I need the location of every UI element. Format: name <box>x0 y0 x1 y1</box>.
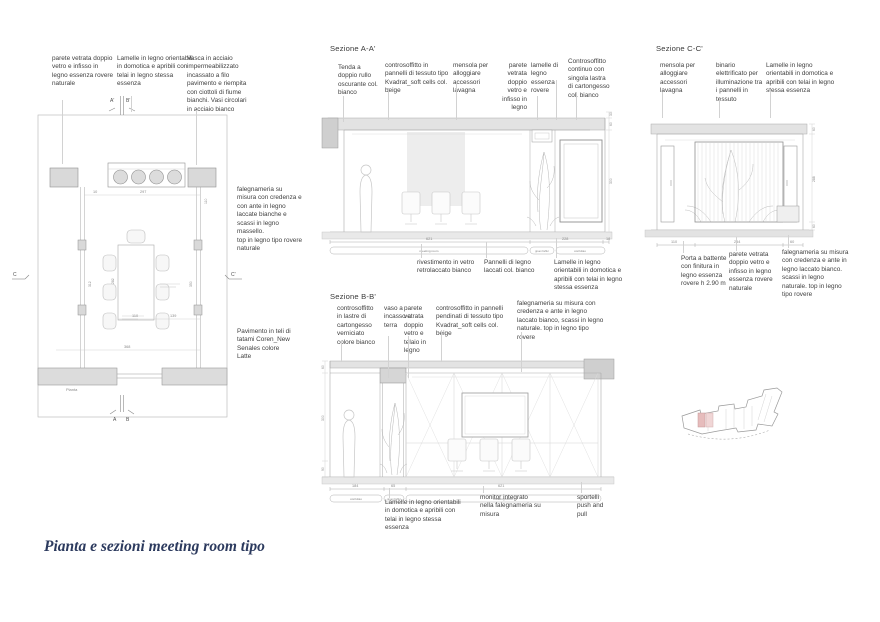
leader-line <box>770 90 771 118</box>
section-a-zones <box>330 247 605 254</box>
dim: 110 <box>671 240 677 244</box>
dim: 60 <box>609 122 613 126</box>
leader-line <box>421 244 422 258</box>
drawing-sheet: parete vetrata doppio vetro e infisso in… <box>0 0 880 622</box>
note-c-parete: parete vetrata doppio vetro e infisso in… <box>729 251 779 293</box>
leader-line <box>343 96 344 122</box>
dim: 254 <box>734 240 740 244</box>
leader-line <box>441 330 442 362</box>
dim: 60 <box>790 240 794 244</box>
plant-sketch <box>527 152 559 230</box>
note-a-parete: parete vetrata doppio vetro e infisso in… <box>497 62 527 113</box>
section-b-chairs <box>448 439 530 471</box>
plan-dim: 350 <box>189 281 193 287</box>
plan-dim: 297 <box>140 190 146 194</box>
section-b-drawing: 184 65 621 60 300 90 corridoio green buf… <box>322 357 614 509</box>
dim: 300 <box>609 178 613 184</box>
section-b-ceiling-slab <box>330 361 601 368</box>
section-b-green-buffer <box>380 368 407 477</box>
section-c-slat-wall <box>685 142 783 222</box>
keyplan-outline <box>682 388 782 434</box>
plant-sketch <box>685 150 779 222</box>
note-a-pannelli: Pannelli di legno laccati col. bianco <box>484 259 538 276</box>
leader-line <box>662 92 663 118</box>
keyplan-highlight-room <box>698 413 705 427</box>
note-b-lamelle-bottom: Lamelle in legno orientabili in domotica… <box>385 499 463 533</box>
note-plan-pavimento: Pavimento in teli di tatami Coren_New Se… <box>237 328 295 362</box>
leader-line <box>62 100 63 164</box>
note-b-controsoffitto: controsoffitto in lastre di cartongesso … <box>337 305 379 347</box>
note-c-falegnameria: falegnameria su misura con credenza e an… <box>782 249 850 300</box>
section-b-zones <box>330 495 601 502</box>
leader-line <box>556 238 557 258</box>
section-b-floor-slab <box>322 477 614 484</box>
note-plan-lamelle: Lamelle in legno orientabili in domotica… <box>117 55 193 89</box>
leader-line <box>521 332 522 372</box>
section-a-chairs <box>402 192 480 224</box>
note-c-binario: binario elettrificato per illuminazione … <box>716 62 764 104</box>
plan-label: Pianta <box>66 387 78 392</box>
section-a-floor-slab <box>322 232 612 239</box>
note-a-rivestimento: rivestimento in vetro retrolaccato bianc… <box>417 259 475 276</box>
note-a-controsoffitto-cartongesso: Controsoffitto continuo con singola last… <box>568 58 612 100</box>
leader-line <box>581 482 582 493</box>
plan-dim: 368 <box>124 345 130 349</box>
plan-mark-c-left: C <box>13 272 17 278</box>
dim: 288 <box>812 176 816 182</box>
plan-dim: 312 <box>88 281 92 287</box>
note-c-lamelle: Lamelle in legno orientabili in domotica… <box>766 62 840 96</box>
note-c-mensola: mensola per alloggiare accessori lavagna <box>660 62 706 96</box>
leader-line <box>683 241 684 253</box>
note-a-lamelle: lamelle di legno essenza rovere <box>531 62 563 96</box>
leader-line <box>537 96 538 120</box>
plan-mark-c-right: C' <box>231 272 236 278</box>
dim: 90 <box>321 467 325 471</box>
dim: 621 <box>498 484 504 488</box>
leader-line <box>456 82 457 120</box>
leader-line <box>408 336 409 378</box>
leader-line <box>483 486 484 493</box>
plan-mark-b1: B' <box>126 98 130 104</box>
leader-line <box>389 488 390 498</box>
dim: 621 <box>426 237 432 241</box>
leader-line <box>131 96 132 112</box>
plan-dim: 10 <box>93 190 97 194</box>
dim: 184 <box>352 484 358 488</box>
plan-mark-a: A <box>113 417 117 423</box>
note-plan-parete-vetrata: parete vetrata doppio vetro e infisso in… <box>52 55 114 89</box>
plan-section-mark-ab-bottom <box>110 395 134 414</box>
leader-line <box>556 80 557 120</box>
dim: 30 <box>609 112 613 116</box>
human-silhouette <box>343 410 355 477</box>
section-b-label: Sezione B-B' <box>330 292 376 301</box>
plan-mark-a1: A' <box>110 98 114 104</box>
leader-line <box>736 237 737 251</box>
leader-line <box>486 242 487 258</box>
note-a-controsoffitto: controsoffitto in pannelli di tessuto ti… <box>385 62 451 96</box>
plan-dim: 282 <box>111 278 115 284</box>
leader-line <box>719 98 720 118</box>
note-b-sportelli: sportelli push and pull <box>577 494 613 519</box>
zone-label: green buffer <box>535 250 549 253</box>
section-a-corridor-lamelle <box>560 140 602 222</box>
dim: 60 <box>812 127 816 131</box>
zone-label: corridoio <box>350 497 362 501</box>
section-a-green-buffer <box>527 130 559 232</box>
keyplan-highlight-room <box>706 413 713 427</box>
section-a-label: Sezione A-A' <box>330 44 376 53</box>
plan-vasca <box>108 163 185 187</box>
plan-dim: 110 <box>132 314 138 318</box>
section-a-drawing: 30 60 300 621 228 18 meeting room green … <box>322 108 614 260</box>
plan-mark-b: B <box>126 417 130 423</box>
note-plan-falegnameria: falegnameria su misura con credenza e co… <box>237 186 303 254</box>
dim: 300 <box>321 415 325 421</box>
plant-sketch <box>380 403 407 475</box>
dim: 228 <box>562 237 568 241</box>
leader-line <box>388 336 389 378</box>
dim: 60 <box>321 365 325 369</box>
section-b-dim-bottom <box>330 487 601 491</box>
leader-line <box>388 88 389 120</box>
sheet-title: Pianta e sezioni meeting room tipo <box>44 538 265 556</box>
leader-line <box>341 340 342 362</box>
section-a-dim-right <box>606 112 612 232</box>
note-b-controsoffitto-pannelli: controsoffitto in pannelli pendinati di … <box>436 305 510 339</box>
note-a-lamelle-bottom: Lamelle in legno orientabili in domotica… <box>554 259 626 293</box>
section-c-dim-bottom <box>657 243 803 247</box>
leader-line <box>196 110 197 165</box>
keyplan <box>678 386 790 452</box>
section-c-label: Sezione C-C' <box>656 44 703 53</box>
zone-label: meeting room <box>420 249 439 253</box>
plan-dim: 139 <box>170 314 176 318</box>
leader-line <box>788 235 789 248</box>
leader-line <box>576 92 577 120</box>
note-b-monitor: monitor integrato nella falegnameria su … <box>480 494 542 519</box>
human-silhouette <box>360 165 372 232</box>
plan-table <box>118 245 154 320</box>
note-a-mensola: mensola per alloggiare accessori lavagna <box>453 62 499 96</box>
note-c-porta: Porta a battente con finitura in legno e… <box>681 255 733 289</box>
dim: 60 <box>812 224 816 228</box>
plan-dim: 110 <box>204 198 208 204</box>
section-b-right-wall <box>584 359 614 379</box>
note-b-falegnameria: falegnameria su misura con credenza e an… <box>517 300 605 342</box>
zone-label: corridoio <box>574 249 586 253</box>
section-c-drawing: 110 254 60 60 288 60 <box>645 110 821 262</box>
dim: 18 <box>606 237 610 241</box>
plan-bottom-walls <box>38 368 227 385</box>
note-a-tenda: Tenda a doppio rullo oscurante col. bian… <box>338 64 380 98</box>
section-a-ceiling-slab <box>328 118 605 130</box>
section-c-ceiling-slab <box>651 124 807 134</box>
plan-drawing: A' B' <box>10 88 244 428</box>
dim: 65 <box>391 484 395 488</box>
section-a-left-wall <box>322 118 338 148</box>
